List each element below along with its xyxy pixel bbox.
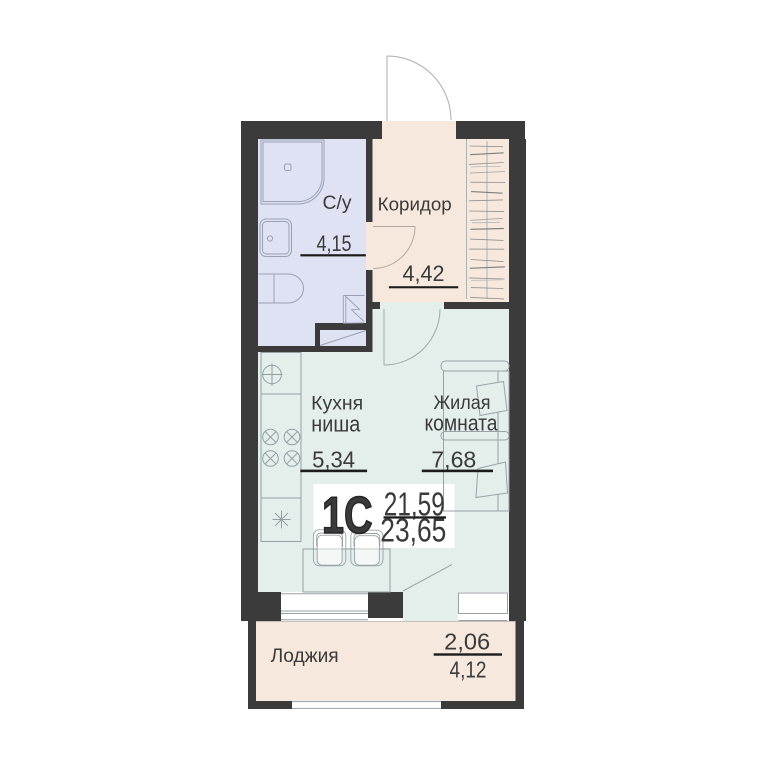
svg-text:4,12: 4,12 — [450, 656, 487, 682]
svg-text:4,42: 4,42 — [403, 261, 445, 286]
svg-text:комната: комната — [425, 411, 499, 436]
svg-text:1С: 1С — [322, 487, 373, 545]
svg-text:Коридор: Коридор — [378, 194, 452, 215]
svg-text:ниша: ниша — [311, 412, 361, 437]
svg-text:С/у: С/у — [323, 193, 353, 214]
svg-text:Лоджия: Лоджия — [271, 646, 339, 667]
svg-text:2,06: 2,06 — [444, 628, 490, 654]
svg-text:4,15: 4,15 — [317, 231, 352, 256]
svg-text:7,68: 7,68 — [431, 447, 476, 473]
svg-text:5,34: 5,34 — [312, 447, 355, 473]
svg-text:23,65: 23,65 — [380, 512, 446, 549]
